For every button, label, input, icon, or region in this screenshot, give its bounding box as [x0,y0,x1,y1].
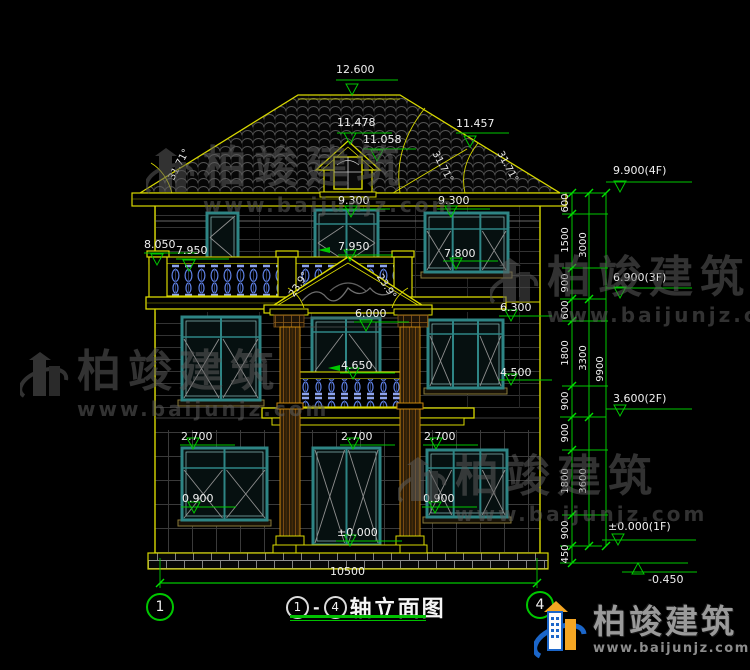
company-logo-icon [534,596,588,664]
dim-total-width: 10500 [330,566,365,577]
drawing-title: 1 - 4 轴立面图 [286,591,446,623]
chain-seg: 3000 [579,223,589,267]
dim-dormer-peak: 11.478 [337,117,376,128]
axis-bubble-1: 1 [146,593,174,621]
level-base: -0.450 [648,574,683,585]
title-underline [290,615,426,618]
dim-win1-head-left: 2.700 [181,431,213,442]
dim-railing-top: 8.050 [144,239,176,250]
chain-seg: 3600 [579,459,589,503]
chain-seg: 1500 [561,218,571,262]
dim-eave-left: 9.300 [338,195,370,206]
chain-seg: 1800 [561,459,571,503]
chain-seg: 450 [561,532,571,576]
company-logo-url: www.baijunjz.com [593,641,750,656]
dim-balcony2-rail: 4.650 [341,360,373,371]
level-3f: 6.900(3F) [613,272,666,283]
level-4f: 9.900(4F) [613,165,666,176]
title-text: 轴立面图 [350,591,446,623]
dim-eave-right: 9.300 [438,195,470,206]
railing-2f [290,372,402,413]
level-1f: ±0.000(1F) [608,521,671,532]
chain-seg: 3300 [579,336,589,380]
dim-door1-head: 2.700 [341,431,373,442]
dim-balcony-slab: 7.950 [176,245,208,256]
title-dash: - [313,598,320,617]
dim-win3-sill: 7.800 [444,248,476,259]
drawing-linework [0,0,750,670]
dim-porch-beam: 6.000 [355,308,387,319]
cad-elevation-canvas: 12.600 11.478 11.058 11.457 9.300 9.300 … [0,0,750,670]
level-2f: 3.600(2F) [613,393,666,404]
title-underline-thin [290,620,426,621]
dim-win2-sill: 4.500 [500,367,532,378]
dim-win1-head-right: 2.700 [424,431,456,442]
chain-seg: 900 [561,411,571,455]
chain-seg: 600 [561,288,571,332]
dim-win1-sill-right: 0.900 [423,493,455,504]
company-logo: 柏竣建筑 www.baijunjz.com [534,596,750,664]
dim-win1-sill-left: 0.900 [182,493,214,504]
chain-seg: 1800 [561,331,571,375]
dim-win2-head: 6.300 [500,302,532,313]
dim-ridge: 12.600 [336,64,375,75]
dim-hip: 11.457 [456,118,495,129]
dim-pediment-peak: 7.950 [338,241,370,252]
company-logo-brand: 柏竣建筑 [593,604,750,640]
chain-total: 9900 [596,347,606,391]
dim-door1-floor: ±0.000 [337,527,378,538]
dim-dormer-eave: 11.058 [363,134,402,145]
